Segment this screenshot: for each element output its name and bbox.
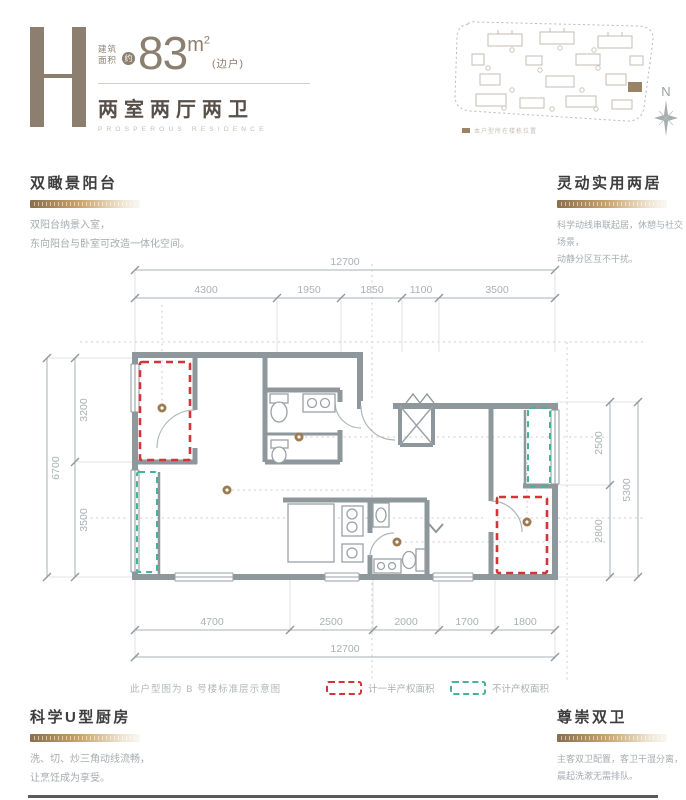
kitchen-island — [288, 504, 334, 562]
half-area-swatch — [326, 681, 362, 695]
plan-letter-h-logo — [30, 27, 86, 127]
area-row: 建筑 面积 约 83 m2 (边户) — [98, 30, 328, 76]
building-swatch — [462, 128, 470, 133]
dim-top-seg-4: 1100 — [410, 284, 433, 296]
approx-badge: 约 — [122, 52, 135, 65]
area-label: 建筑 面积 — [98, 44, 117, 67]
h-right-bar — [72, 27, 86, 127]
dim-top-seg-5: 3500 — [485, 284, 509, 296]
north-label: N — [661, 84, 670, 99]
feature-kitchen: 科学U型厨房 洗、切、炒三角动线流畅， 让烹饪成为享受。 — [30, 706, 245, 788]
plan-legend-row: 此户型图为 B 号楼标准层示意图 计一半产权面积 不计产权面积 — [130, 678, 580, 696]
area-note: (边户) — [212, 56, 244, 71]
dim-right-total: 5300 — [621, 478, 633, 502]
site-trees — [486, 46, 636, 111]
dim-top-total: 12700 — [330, 256, 359, 268]
dim-top-seg-1: 4300 — [194, 284, 218, 296]
half-area-overlay-bedroom2 — [497, 497, 547, 573]
feature-bathrooms: 尊崇双卫 主客双卫配置，客卫干湿分离， 晨起洗漱无需排队。 — [557, 706, 683, 785]
dim-left-seg-2: 3500 — [78, 508, 90, 532]
walls — [132, 352, 555, 577]
feature-two-rooms-line1: 科学动线串联起居，休憩与社交场景， — [557, 217, 683, 251]
dim-right-seg-2: 2800 — [593, 519, 605, 543]
dim-right-seg-1: 2500 — [593, 431, 605, 455]
area-unit: m2 — [187, 34, 210, 57]
washbasin — [376, 508, 386, 522]
feature-bathrooms-title: 尊崇双卫 — [557, 706, 683, 727]
feature-balcony: 双瞰景阳台 双阳台纳景入室， 东向阳台与卧室可改造一体化空间。 — [30, 172, 245, 254]
shear-wall-chevron — [429, 524, 443, 532]
toilet-tank — [416, 549, 425, 571]
dim-bottom-seg-1: 4700 — [200, 616, 224, 628]
burner — [347, 522, 357, 532]
area-label-line2: 面积 — [98, 55, 117, 66]
dim-bottom-seg-5: 1800 — [513, 616, 537, 628]
highlighted-building — [628, 82, 642, 92]
gold-bar — [557, 734, 667, 742]
toilet-bowl — [272, 447, 286, 463]
dim-left-total: 6700 — [50, 456, 62, 480]
gold-bar — [30, 200, 140, 208]
feature-balcony-title: 双瞰景阳台 — [30, 172, 245, 193]
site-legend-label: 本户型所在楼栋位置 — [474, 126, 537, 135]
kitchen-sink-basin — [347, 548, 357, 558]
feature-bathrooms-line1: 主客双卫配置，客卫干湿分离， — [557, 751, 683, 768]
feature-balcony-line1: 双阳台纳景入室， — [30, 217, 245, 236]
sink-basin — [389, 563, 396, 570]
closet-triangles — [406, 394, 434, 403]
sink-basin — [321, 399, 330, 408]
excluded-area-swatch — [450, 681, 486, 695]
area-label-line1: 建筑 — [98, 44, 117, 55]
toilet-bowl — [271, 402, 287, 422]
dim-bottom-seg-4: 1700 — [455, 616, 479, 628]
toilet-bowl — [403, 552, 416, 569]
burner — [347, 509, 357, 519]
sink-basin — [308, 399, 317, 408]
header-divider — [98, 83, 310, 84]
unit-header: 建筑 面积 约 83 m2 (边户) 两室两厅两卫 PROSPEROUS RES… — [98, 30, 328, 133]
site-plan-legend: 本户型所在楼栋位置 — [462, 126, 537, 135]
h-left-bar — [30, 27, 44, 127]
guide-lines — [80, 264, 645, 682]
dim-bottom-seg-2: 2500 — [319, 616, 343, 628]
gold-bar — [30, 734, 140, 742]
dim-bottom-seg-3: 2000 — [394, 616, 418, 628]
site-plan-map — [448, 12, 666, 130]
floor-plan-drawing: 12700 4300 1950 1850 1100 3500 4700 2500… — [25, 250, 670, 690]
dim-bottom-total: 12700 — [330, 643, 359, 655]
plan-note: 此户型图为 B 号楼标准层示意图 — [130, 681, 281, 695]
feature-kitchen-line1: 洗、切、炒三角动线流畅， — [30, 751, 245, 770]
site-buildings — [472, 28, 643, 109]
half-area-label: 计一半产权面积 — [368, 681, 435, 695]
area-value: 83 — [138, 30, 187, 76]
unit-m: m — [187, 34, 204, 56]
excluded-area-overlay-east — [528, 408, 550, 486]
sink-basin — [378, 563, 385, 570]
layout-title: 两室两厅两卫 — [98, 93, 328, 122]
dim-top-seg-2: 1950 — [297, 284, 321, 296]
feature-two-rooms-title: 灵动实用两居 — [557, 172, 683, 193]
unit-sup: 2 — [204, 34, 210, 46]
excluded-area-label: 不计产权面积 — [492, 681, 549, 695]
north-compass: N — [649, 84, 685, 138]
dim-top-seg-3: 1850 — [360, 284, 384, 296]
layout-subtitle: PROSPEROUS RESIDENCE — [98, 126, 328, 133]
feature-kitchen-line2: 让烹饪成为享受。 — [30, 770, 245, 789]
h-cross-bar — [44, 74, 72, 78]
closet-x-mark — [400, 406, 433, 445]
feature-bathrooms-line2: 晨起洗漱无需排队。 — [557, 768, 683, 785]
feature-kitchen-title: 科学U型厨房 — [30, 706, 245, 727]
gold-bar — [557, 200, 667, 208]
dim-left-seg-1: 3200 — [78, 398, 90, 422]
page-bottom-rule — [28, 795, 658, 798]
